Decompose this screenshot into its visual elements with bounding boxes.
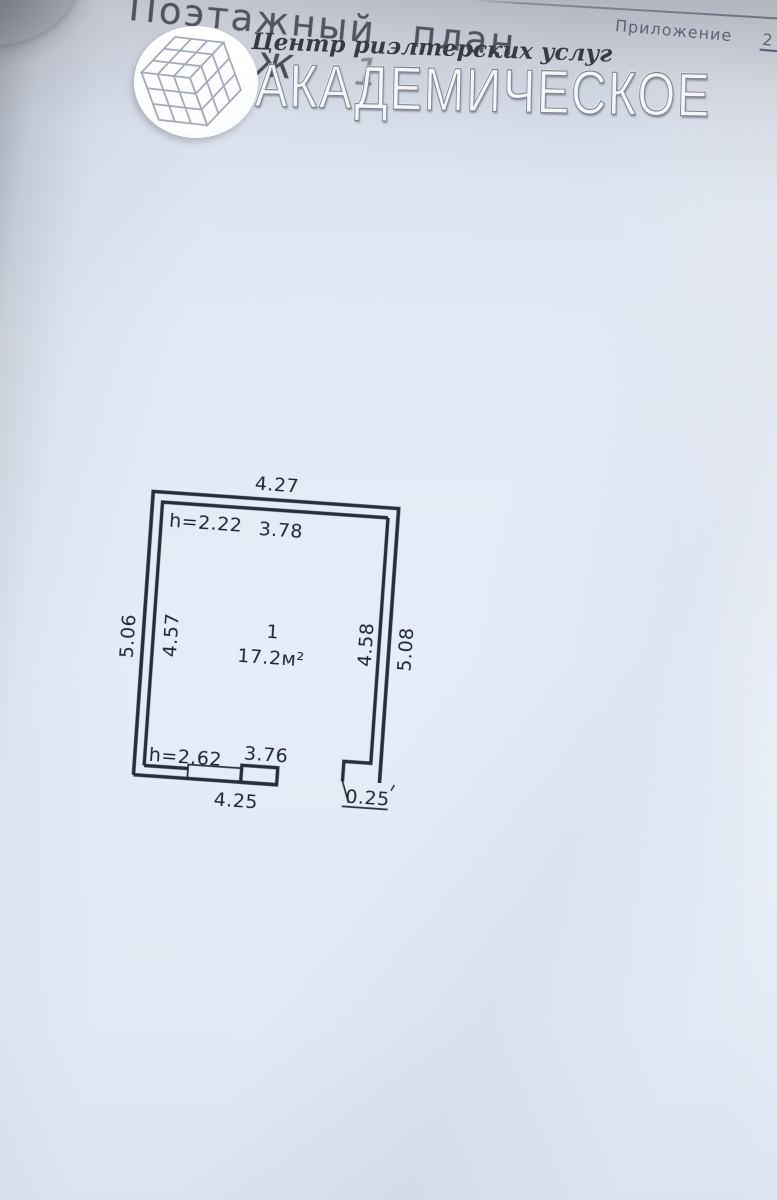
dim-right-outer: 5.08 bbox=[393, 627, 418, 673]
room-area: 17.2м² bbox=[237, 645, 306, 672]
appendix-note: Приложение 2 bbox=[614, 16, 777, 51]
dim-right-inner: 4.58 bbox=[354, 622, 379, 668]
dim-top-inner: 3.78 bbox=[258, 518, 304, 543]
photographed-document: Поэтажный план аж1 Приложение 2 Центр ри… bbox=[0, 0, 777, 1200]
floor-plan: 4.27 h=2.22 3.78 5.06 4.57 1 17.2м² 4.58… bbox=[104, 460, 437, 826]
paper-corner-curl bbox=[0, 0, 78, 46]
dim-ceiling-height-top: h=2.22 bbox=[168, 510, 243, 537]
dim-wall-step: 0.25 bbox=[345, 786, 391, 811]
floor-plan-drawing: 4.27 h=2.22 3.78 5.06 4.57 1 17.2м² 4.58… bbox=[104, 460, 437, 826]
dim-bottom-inner: 3.76 bbox=[243, 742, 289, 767]
step-dimension-tick bbox=[391, 785, 394, 791]
dim-top-outer: 4.27 bbox=[254, 473, 300, 498]
dim-left-inner: 4.57 bbox=[159, 612, 184, 658]
dim-left-outer: 5.06 bbox=[116, 613, 141, 659]
cube-logo-icon bbox=[120, 18, 270, 150]
logo-brand-name: АКАДЕМИЧЕСКОЕ bbox=[254, 50, 711, 130]
appendix-number: 2 bbox=[760, 30, 777, 53]
dim-bottom-outer: 4.25 bbox=[213, 788, 259, 813]
appendix-label: Приложение bbox=[614, 16, 733, 45]
room-number: 1 bbox=[266, 621, 280, 644]
